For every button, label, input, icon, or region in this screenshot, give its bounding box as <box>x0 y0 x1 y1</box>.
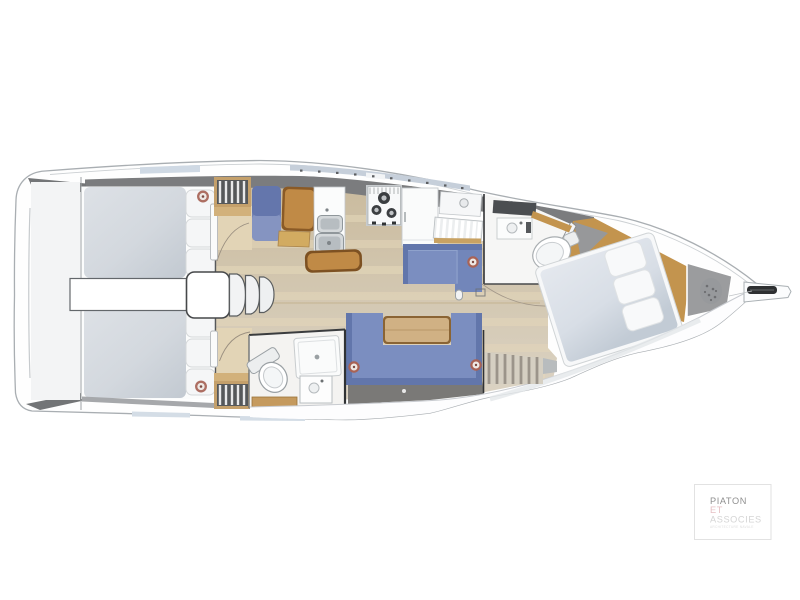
svg-text:ARCHITECTURE NAVALE: ARCHITECTURE NAVALE <box>710 525 754 529</box>
svg-text:ET: ET <box>710 505 723 515</box>
svg-text:ASSOCIES: ASSOCIES <box>710 515 762 525</box>
